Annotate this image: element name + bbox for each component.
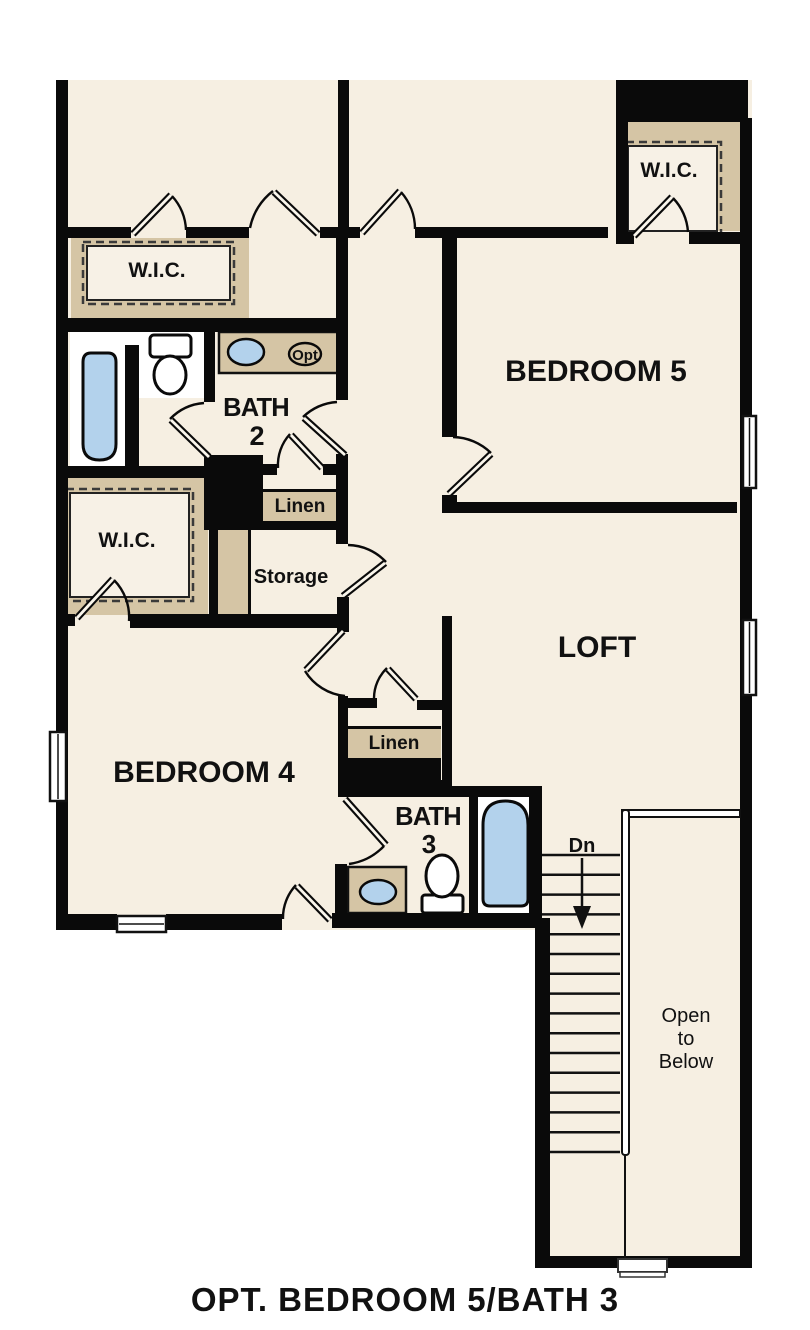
- svg-text:Open: Open: [662, 1005, 711, 1027]
- svg-text:LOFT: LOFT: [558, 631, 636, 664]
- svg-text:Storage: Storage: [254, 566, 328, 588]
- svg-text:3: 3: [422, 829, 436, 859]
- svg-text:BATH: BATH: [223, 394, 289, 422]
- svg-text:Linen: Linen: [369, 733, 420, 754]
- svg-text:Opt: Opt: [292, 347, 318, 364]
- svg-text:BEDROOM 5: BEDROOM 5: [505, 355, 687, 388]
- svg-text:Linen: Linen: [275, 496, 326, 517]
- svg-text:to: to: [678, 1028, 695, 1050]
- svg-text:W.I.C.: W.I.C.: [128, 259, 185, 282]
- svg-text:Dn: Dn: [569, 835, 596, 857]
- svg-text:BATH: BATH: [395, 803, 461, 831]
- svg-text:BEDROOM 4: BEDROOM 4: [113, 756, 295, 789]
- svg-text:Below: Below: [659, 1051, 714, 1073]
- svg-text:W.I.C.: W.I.C.: [640, 159, 697, 182]
- svg-text:2: 2: [249, 421, 264, 451]
- svg-text:W.I.C.: W.I.C.: [98, 529, 155, 552]
